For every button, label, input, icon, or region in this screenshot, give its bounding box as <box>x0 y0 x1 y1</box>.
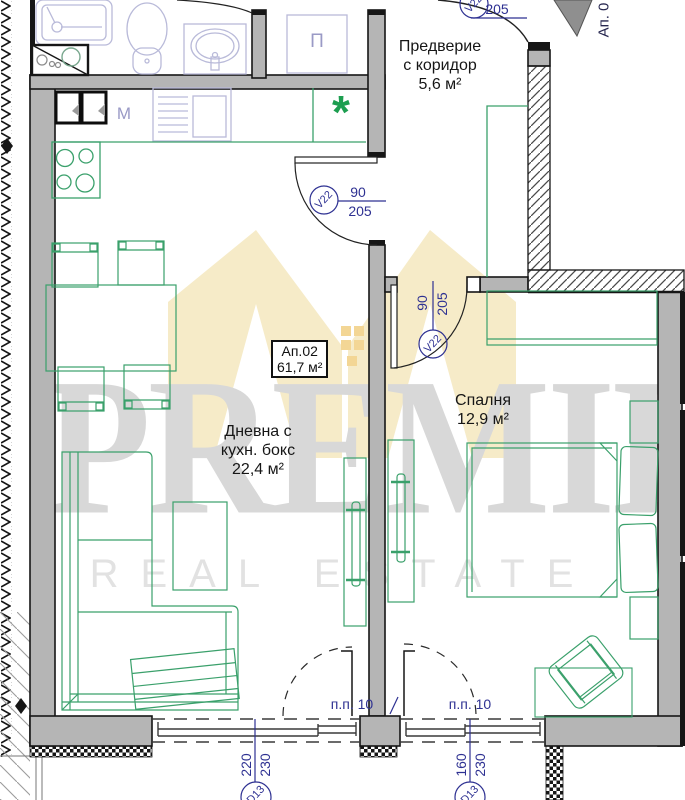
living-door-tag: V22 <box>313 189 335 212</box>
bedroom-label: Спалня 12,9 м² <box>455 391 511 429</box>
fridge-asterisk-icon: * <box>332 89 350 135</box>
neighbor-apartment-label: Ап. 0 <box>596 3 613 38</box>
bedroom-window-tag: D13 <box>459 784 482 800</box>
bedroom-door-height: 205 <box>434 292 450 315</box>
bedroom-window-width: 160 <box>453 753 469 776</box>
bedroom-window-parapet: п.п. 10 <box>449 696 491 712</box>
floor-plan: PREMIER REAL ESTATE <box>0 0 685 800</box>
labels: Предверие с коридор 5,6 м² Дневна с кухн… <box>0 0 685 800</box>
living-door-width: 90 <box>350 184 366 200</box>
closet-letter: П <box>310 31 324 53</box>
living-window-tag: D13 <box>245 784 268 800</box>
apartment-number-box: Ап.02 61,7 м² <box>271 340 328 378</box>
entrance-door-tag: V22 <box>463 0 485 15</box>
bedroom-door-tag: V22 <box>422 333 444 356</box>
living-window-height: 230 <box>257 753 273 776</box>
living-window-width: 220 <box>238 753 254 776</box>
living-window-parapet: п.п. 10 <box>331 696 373 712</box>
living-door-height: 205 <box>348 203 371 219</box>
washer-letter: M <box>117 104 131 124</box>
apartment-number: Ап.02 <box>277 343 322 359</box>
bedroom-door-width: 90 <box>414 295 430 311</box>
apartment-area: 61,7 м² <box>277 359 322 375</box>
bedroom-window-height: 230 <box>472 753 488 776</box>
entrance-door-height: 205 <box>485 1 508 17</box>
vestibule-label: Предверие с коридор 5,6 м² <box>399 37 481 94</box>
living-room-label: Дневна с кухн. бокс 22,4 м² <box>221 422 295 479</box>
